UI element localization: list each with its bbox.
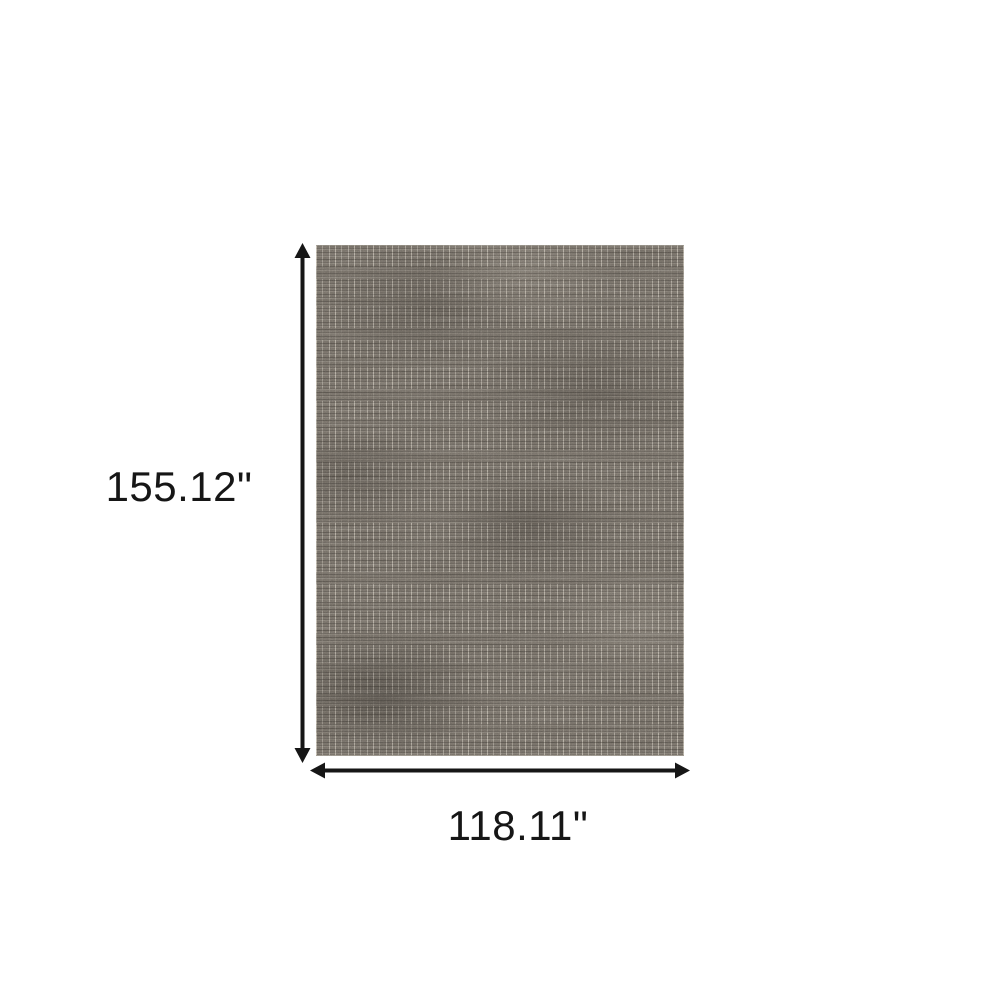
arrow-down-head [295,748,311,763]
arrow-right-head [675,763,690,779]
horizontal-dimension-arrow [310,762,690,779]
vertical-dimension-arrow [294,243,311,763]
product-dimension-diagram: 155.12" 118.11" [0,0,1000,1000]
arrow-up-head [295,243,311,258]
width-dimension-label: 118.11" [418,803,618,849]
height-dimension-label: 155.12" [79,464,279,510]
rug-image [316,245,684,756]
arrow-left-head [310,763,325,779]
rug-texture-noise [316,245,684,756]
